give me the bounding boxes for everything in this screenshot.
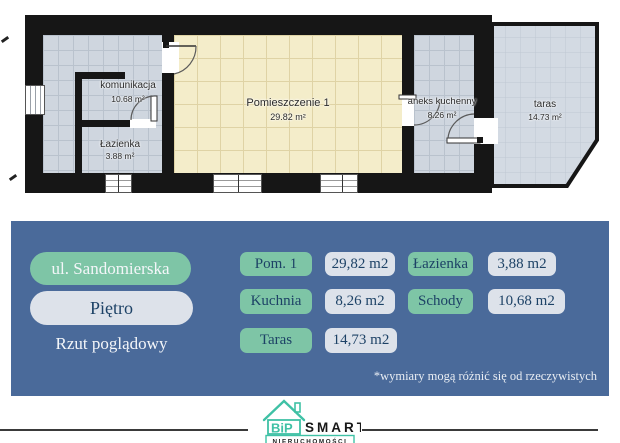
door-hinge-4 bbox=[477, 137, 483, 143]
room-area-lazienka: 3.88 m² bbox=[70, 152, 170, 161]
room-label-taras: taras bbox=[495, 99, 595, 110]
room-area-komunikacja: 10.68 m² bbox=[78, 95, 178, 104]
room-area-pomieszczenie1: 29.82 m² bbox=[213, 113, 363, 123]
table-room-lazienka: Łazienka bbox=[408, 252, 473, 276]
table-value-pom1: 29,82 m2 bbox=[325, 252, 395, 276]
room-area-taras: 14.73 m² bbox=[495, 113, 595, 122]
logo-monogram: BiP bbox=[271, 421, 293, 436]
address-pill: ul. Sandomierska bbox=[30, 252, 191, 285]
view-type-label: Rzut poglądowy bbox=[30, 331, 193, 357]
info-panel: ul. Sandomierska Piętro Rzut poglądowy P… bbox=[11, 221, 609, 396]
footer-divider-right bbox=[362, 429, 598, 431]
floor-pill: Piętro bbox=[30, 291, 193, 325]
dimensions-disclaimer: *wymiary mogą różnić się od rzeczywistyc… bbox=[374, 369, 597, 384]
door-leaf-4 bbox=[447, 138, 480, 143]
floor-plan: komunikacja 10.68 m² Łazienka 3.88 m² Po… bbox=[0, 0, 620, 215]
room-area-aneks: 8.26 m² bbox=[392, 111, 492, 120]
door-hinge-1 bbox=[163, 42, 169, 48]
room-label-lazienka: Łazienka bbox=[70, 139, 170, 150]
logo-brand-text: SMART bbox=[305, 420, 361, 435]
footer-divider-left bbox=[0, 429, 248, 431]
table-room-schody: Schody bbox=[408, 289, 473, 314]
table-room-taras: Taras bbox=[240, 328, 312, 353]
table-value-taras: 14,73 m2 bbox=[325, 328, 397, 353]
room-label-pomieszczenie1: Pomieszczenie 1 bbox=[213, 97, 363, 109]
flyer-page: komunikacja 10.68 m² Łazienka 3.88 m² Po… bbox=[0, 0, 620, 443]
table-value-schody: 10,68 m2 bbox=[488, 289, 565, 314]
room-label-aneks: aneks kuchenny bbox=[392, 97, 492, 107]
table-room-kuchnia: Kuchnia bbox=[240, 289, 312, 314]
room-label-komunikacja: komunikacja bbox=[78, 80, 178, 91]
table-value-lazienka: 3,88 m2 bbox=[488, 252, 556, 276]
table-room-pom1: Pom. 1 bbox=[240, 252, 312, 276]
table-value-kuchnia: 8,26 m2 bbox=[325, 289, 395, 314]
company-logo: BiP SMART NIERUCHOMOŚCI bbox=[261, 394, 361, 443]
